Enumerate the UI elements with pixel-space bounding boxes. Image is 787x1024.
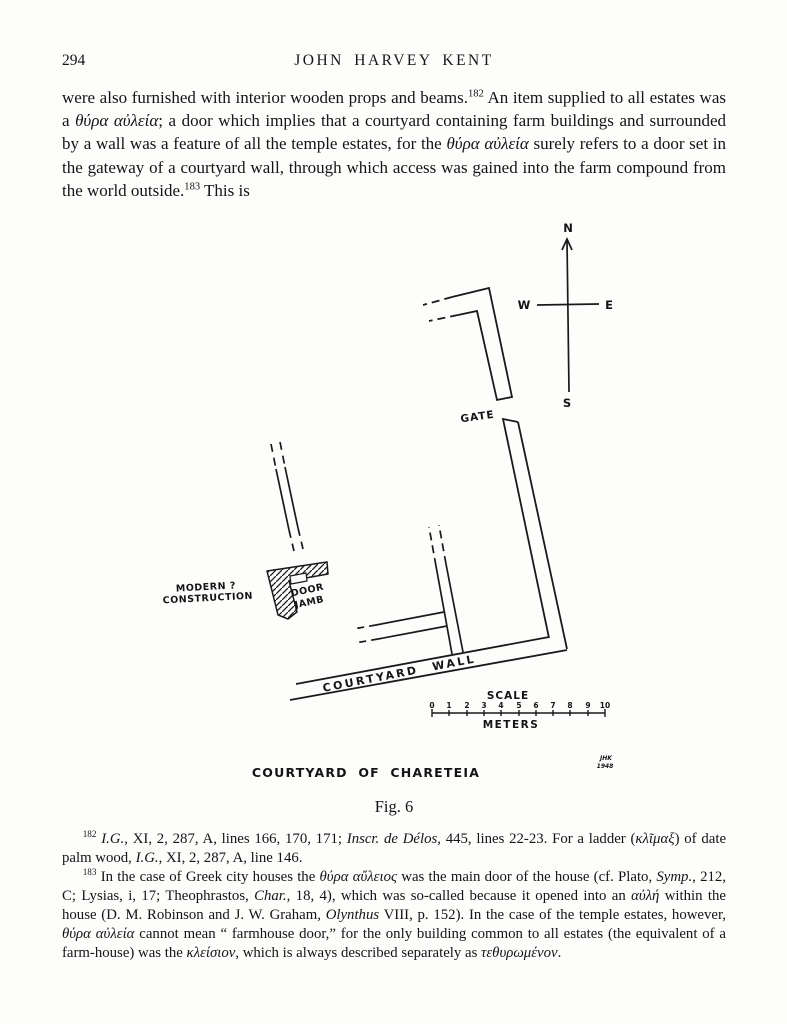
scale-number: 10 [600, 701, 610, 710]
courtyard-wall [290, 637, 567, 700]
scale-title: SCALE [487, 690, 529, 702]
footnote-183: 183 In the case of Greek city houses the… [62, 868, 726, 963]
scale-number: 5 [516, 701, 521, 710]
scale-number: 9 [585, 701, 590, 710]
courtyard-wall-label: COURTYARD WALL [322, 652, 477, 695]
wall-dashed-line [353, 625, 378, 643]
east-wall [503, 419, 567, 649]
modern-construction-label-line1: MODERN ? [176, 580, 236, 594]
wall-line [290, 650, 567, 700]
scale-number: 6 [533, 701, 538, 710]
scale-number: 7 [550, 701, 555, 710]
footnote-182: 182 I.G., XI, 2, 287, A, lines 166, 170,… [62, 830, 726, 868]
door-jamb-label-line2: JAMB [293, 594, 325, 611]
compass-rose [537, 239, 599, 392]
wall-fragment [271, 442, 303, 551]
interior-vertical-wall [429, 525, 463, 654]
scale-unit: METERS [483, 719, 540, 731]
wall-line [376, 612, 447, 639]
wall-line [436, 564, 463, 654]
door-jamb-label-line1: DOOR [290, 582, 325, 600]
scale-number: 0 [429, 701, 434, 710]
scale-number: 2 [464, 701, 469, 710]
scale-ticks [432, 709, 605, 717]
signature-year: 1948 [597, 763, 614, 770]
door-jamb-notch [290, 573, 307, 584]
scale-bar [432, 709, 605, 717]
running-title: JOHN HARVEY KENT [62, 52, 726, 70]
scale-number: 8 [567, 701, 572, 710]
north-wall [423, 288, 512, 400]
signature-initials: JHK [599, 755, 613, 762]
wall-line [276, 467, 298, 530]
wall-dashed-line [271, 442, 303, 551]
running-head: 294 JOHN HARVEY KENT [62, 52, 726, 72]
plan-caption: COURTYARD OF CHARETEIA [252, 765, 480, 780]
compass-north-label: N [563, 221, 573, 235]
compass-east-label: E [605, 298, 613, 312]
wall-dashed-line [423, 297, 458, 321]
door-jamb-block [267, 562, 328, 619]
wall-dashed-line [429, 525, 446, 566]
scale-number: 1 [446, 701, 451, 710]
figure-number: Fig. 6 [62, 797, 726, 817]
door-jamb-hatch [267, 562, 328, 619]
compass-arrowhead [562, 239, 572, 250]
body-paragraph: were also furnished with interior wooden… [62, 86, 726, 202]
footnotes: 182 I.G., XI, 2, 287, A, lines 166, 170,… [62, 830, 726, 963]
scale-numbers: 0 1 2 3 4 5 6 7 8 9 10 [429, 701, 610, 710]
wall-line [503, 419, 567, 649]
modern-construction-label-line2: CONSTRUCTION [162, 591, 253, 607]
scale-number: 4 [498, 701, 503, 710]
interior-horizontal-wall [353, 612, 447, 643]
wall-line [296, 637, 549, 684]
compass-ew-line [537, 304, 599, 305]
wall-line [452, 288, 512, 400]
gate-label: GATE [460, 409, 496, 426]
compass-ns-line [567, 240, 569, 392]
compass-south-label: S [563, 396, 571, 410]
scale-number: 3 [481, 701, 486, 710]
compass-west-label: W [518, 298, 531, 312]
